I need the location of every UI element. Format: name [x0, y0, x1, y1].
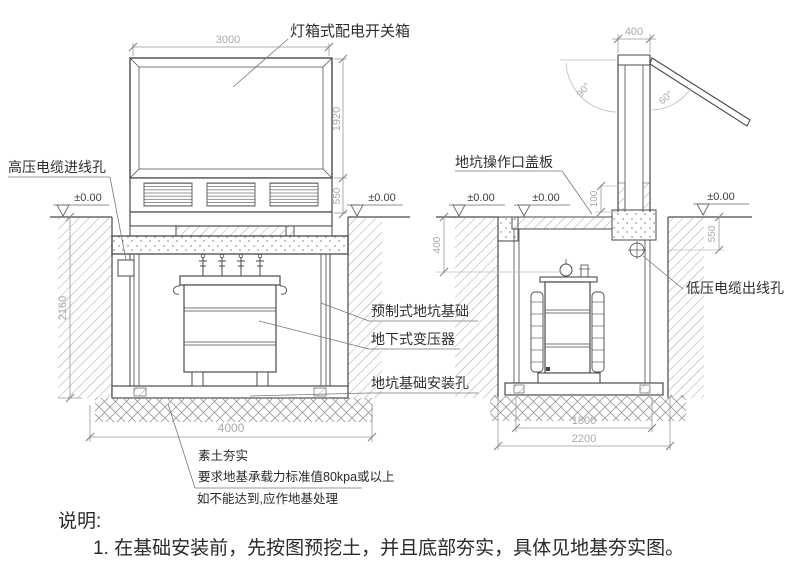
notes-section: 说明: 1. 在基础安装前，先按图预挖土，并且底部夯实，具体见地基夯实图。	[58, 510, 684, 559]
installation-drawing: 3000 1920 550 2160 4000 ±0.00 ±0.00 灯箱式配…	[0, 0, 790, 570]
dim-pit-top-depth: 400	[432, 236, 443, 253]
notes-heading: 说明:	[58, 510, 101, 532]
level-marker-text: ±0.00	[532, 192, 559, 204]
angle-full-open: 90°	[575, 81, 593, 100]
transformer-side	[531, 259, 604, 383]
level-marker-text: ±0.00	[368, 192, 395, 204]
ground-note-line1: 素土夯实	[198, 448, 248, 463]
ground-note-line2: 要求地基承载力标准值80kpa或以上	[198, 469, 395, 484]
label-hv-cable-hole: 高压电缆进线孔	[8, 159, 106, 175]
dim-width-top: 3000	[216, 34, 240, 46]
dim-inner-width: 1800	[572, 415, 596, 427]
hv-cable-inlet-box	[118, 260, 134, 276]
bushings	[199, 254, 264, 276]
label-underground-transformer: 地下式变压器	[371, 331, 455, 347]
side-view: 90° 60°	[432, 26, 784, 450]
dim-cover-offset: 100	[589, 190, 600, 207]
level-marker-text: ±0.00	[707, 191, 734, 203]
radiator-right	[592, 292, 604, 372]
label-light-box: 灯箱式配电开关箱	[290, 23, 410, 40]
drawing-canvas: 3000 1920 550 2160 4000 ±0.00 ±0.00 灯箱式配…	[0, 0, 790, 570]
label-lv-cable-hole: 低压电缆出线孔	[686, 280, 784, 296]
dim-pit-width: 4000	[218, 421, 245, 435]
label-pit-cover: 地坑操作口盖板	[455, 154, 553, 170]
dim-base-band: 550	[332, 187, 343, 204]
notes-item-1: 1. 在基础安装前，先按图预挖土，并且底部夯实，具体见地基夯实图。	[93, 537, 684, 559]
label-pit-mounting-hole: 地坑基础安装孔	[371, 375, 469, 391]
dim-edge-depth: 550	[707, 225, 718, 242]
transformer-front	[174, 254, 287, 386]
dim-cabinet-height: 1920	[331, 107, 343, 131]
dim-outer-width: 2200	[572, 433, 596, 445]
pit-cover-slab	[512, 217, 612, 229]
light-box-cabinet	[130, 58, 332, 178]
ventilation-louvers	[130, 178, 332, 226]
front-view: 3000 1920 550 2160 4000 ±0.00 ±0.00 灯箱式配…	[8, 23, 478, 442]
dim-shaft-width: 400	[625, 26, 643, 38]
base-platform	[112, 226, 348, 254]
tamped-soil-hatch	[95, 398, 373, 422]
radiator-left	[531, 292, 543, 372]
level-marker-text: ±0.00	[74, 192, 101, 204]
level-marker-text: ±0.00	[467, 192, 494, 204]
ground-note-line3: 如不能达到,应作地基处理	[197, 491, 338, 506]
dim-pit-depth: 2160	[57, 296, 69, 320]
label-precast-pit: 预制式地坑基础	[371, 303, 469, 319]
access-shaft	[560, 55, 750, 212]
